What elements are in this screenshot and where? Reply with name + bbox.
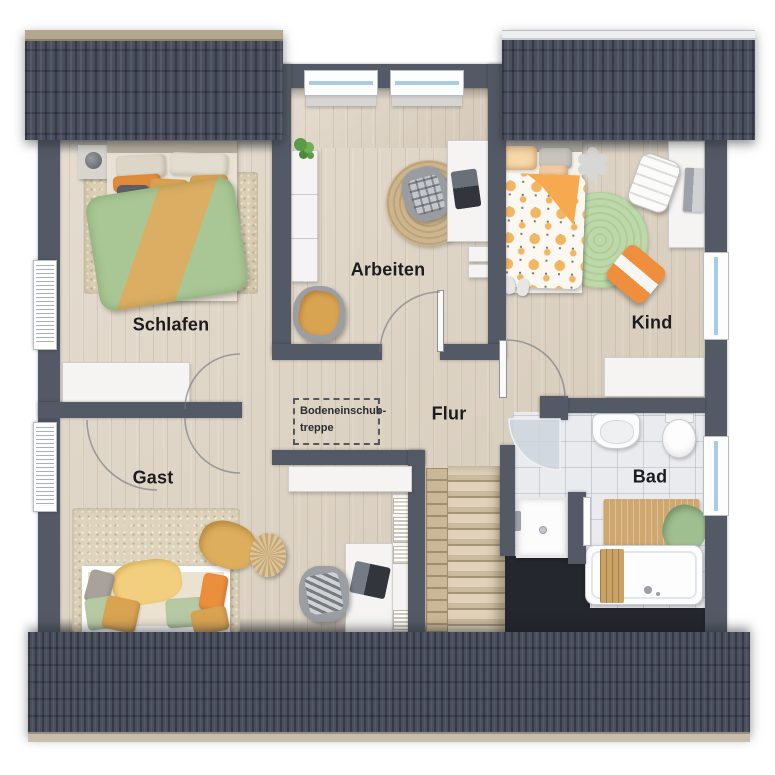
wall-arbeiten-flur bbox=[272, 344, 382, 360]
floor-plan: Schlafen Arbeiten Kind Gast Flur Bad Bod… bbox=[0, 0, 775, 775]
wall-exterior-left bbox=[38, 134, 60, 642]
room-label-bad: Bad bbox=[633, 467, 668, 488]
jute-pouf bbox=[250, 533, 286, 577]
roof-right bbox=[502, 30, 755, 140]
roof-ridge-left bbox=[25, 30, 283, 41]
dresser bbox=[604, 357, 705, 397]
radiator bbox=[33, 422, 57, 512]
toilet-bowl bbox=[662, 419, 696, 458]
window-arbeiten-1 bbox=[304, 70, 378, 96]
room-label-arbeiten: Arbeiten bbox=[351, 260, 426, 281]
roof-ridge-right bbox=[502, 30, 755, 40]
kids-laptop bbox=[683, 167, 706, 212]
bath-faucet bbox=[644, 586, 652, 594]
duvet-fold bbox=[522, 173, 580, 227]
book-stack bbox=[393, 517, 409, 543]
wall-exterior-right bbox=[705, 134, 727, 642]
roof-eave-bottom bbox=[28, 732, 750, 742]
striped-pillow bbox=[304, 571, 344, 615]
toilet bbox=[661, 413, 698, 459]
pillow-floral bbox=[502, 146, 537, 170]
radiator bbox=[33, 260, 57, 350]
storage-box bbox=[468, 246, 489, 262]
towel-radiator bbox=[583, 497, 591, 546]
plant bbox=[294, 138, 307, 151]
sink bbox=[592, 413, 640, 449]
roof-left bbox=[25, 30, 283, 140]
staircase bbox=[448, 466, 505, 640]
room-label-kind: Kind bbox=[632, 313, 673, 334]
window-kind bbox=[703, 252, 729, 340]
loft-hatch-annotation: Bodeneinschub- treppe bbox=[293, 398, 380, 445]
wall-shower bbox=[500, 445, 515, 556]
room-label-schlafen: Schlafen bbox=[133, 315, 210, 336]
stair-railing bbox=[426, 468, 448, 632]
book-stack bbox=[393, 610, 409, 630]
room-label-flur: Flur bbox=[432, 404, 467, 425]
shower-drain bbox=[539, 526, 547, 534]
door-leaf-arbeiten bbox=[437, 290, 444, 352]
wall-flur-gast bbox=[272, 450, 425, 465]
pillow-mustard bbox=[101, 595, 141, 634]
bath-caddy bbox=[600, 549, 624, 603]
room-label-gast: Gast bbox=[133, 468, 174, 489]
book-stack bbox=[393, 498, 409, 514]
bathtub bbox=[585, 545, 703, 605]
polka-dot-duvet bbox=[494, 172, 586, 289]
wall-schlafen-gast bbox=[38, 402, 242, 418]
laptop bbox=[450, 168, 481, 209]
wall-arbeiten-flur bbox=[440, 344, 506, 360]
pillow bbox=[170, 152, 229, 177]
annotation-line1: Bodeneinschub- bbox=[300, 403, 386, 420]
storage-box bbox=[468, 264, 489, 278]
window-bad bbox=[703, 436, 729, 516]
sink-basin bbox=[600, 420, 634, 444]
wall-bad-corner bbox=[540, 396, 568, 420]
flower-side-table bbox=[584, 155, 601, 172]
annotation-line2: treppe bbox=[300, 420, 334, 437]
book-stack bbox=[393, 546, 409, 564]
door-leaf-kind bbox=[499, 340, 507, 398]
hall-sideboard bbox=[288, 466, 412, 492]
shower-tray bbox=[516, 497, 568, 558]
headboard bbox=[107, 141, 237, 153]
sideboard bbox=[62, 362, 190, 404]
window-arbeiten-2 bbox=[390, 70, 464, 96]
roof-bottom bbox=[28, 632, 750, 742]
decor-bowl bbox=[85, 152, 102, 169]
shelf-unit bbox=[291, 150, 318, 282]
duvet bbox=[84, 175, 250, 313]
